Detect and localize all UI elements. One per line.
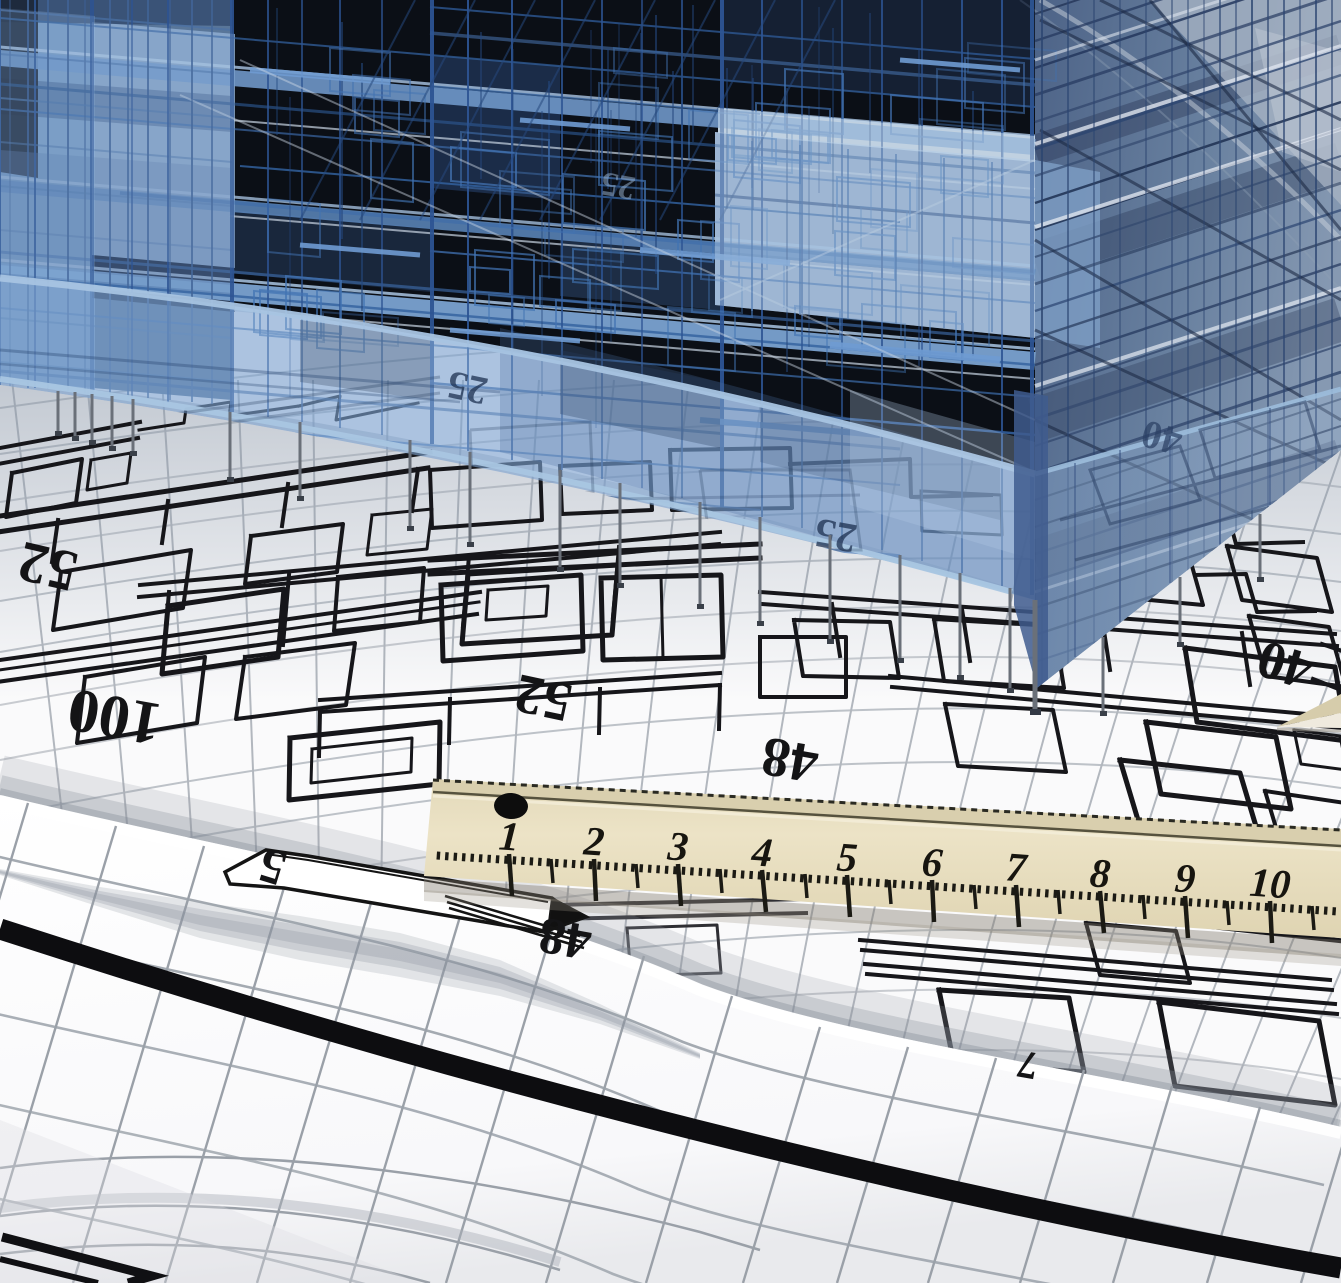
svg-text:3: 3 [665,822,690,869]
svg-text:48: 48 [535,906,596,971]
svg-text:8: 8 [1088,849,1112,896]
svg-text:1: 1 [497,812,521,859]
svg-text:6: 6 [920,838,944,885]
svg-text:9: 9 [1173,854,1197,901]
svg-text:5: 5 [835,833,859,880]
svg-text:10: 10 [1248,859,1292,908]
svg-text:4: 4 [749,828,774,875]
svg-text:25: 25 [598,164,638,206]
svg-text:2: 2 [581,817,606,864]
svg-text:48: 48 [757,724,823,795]
